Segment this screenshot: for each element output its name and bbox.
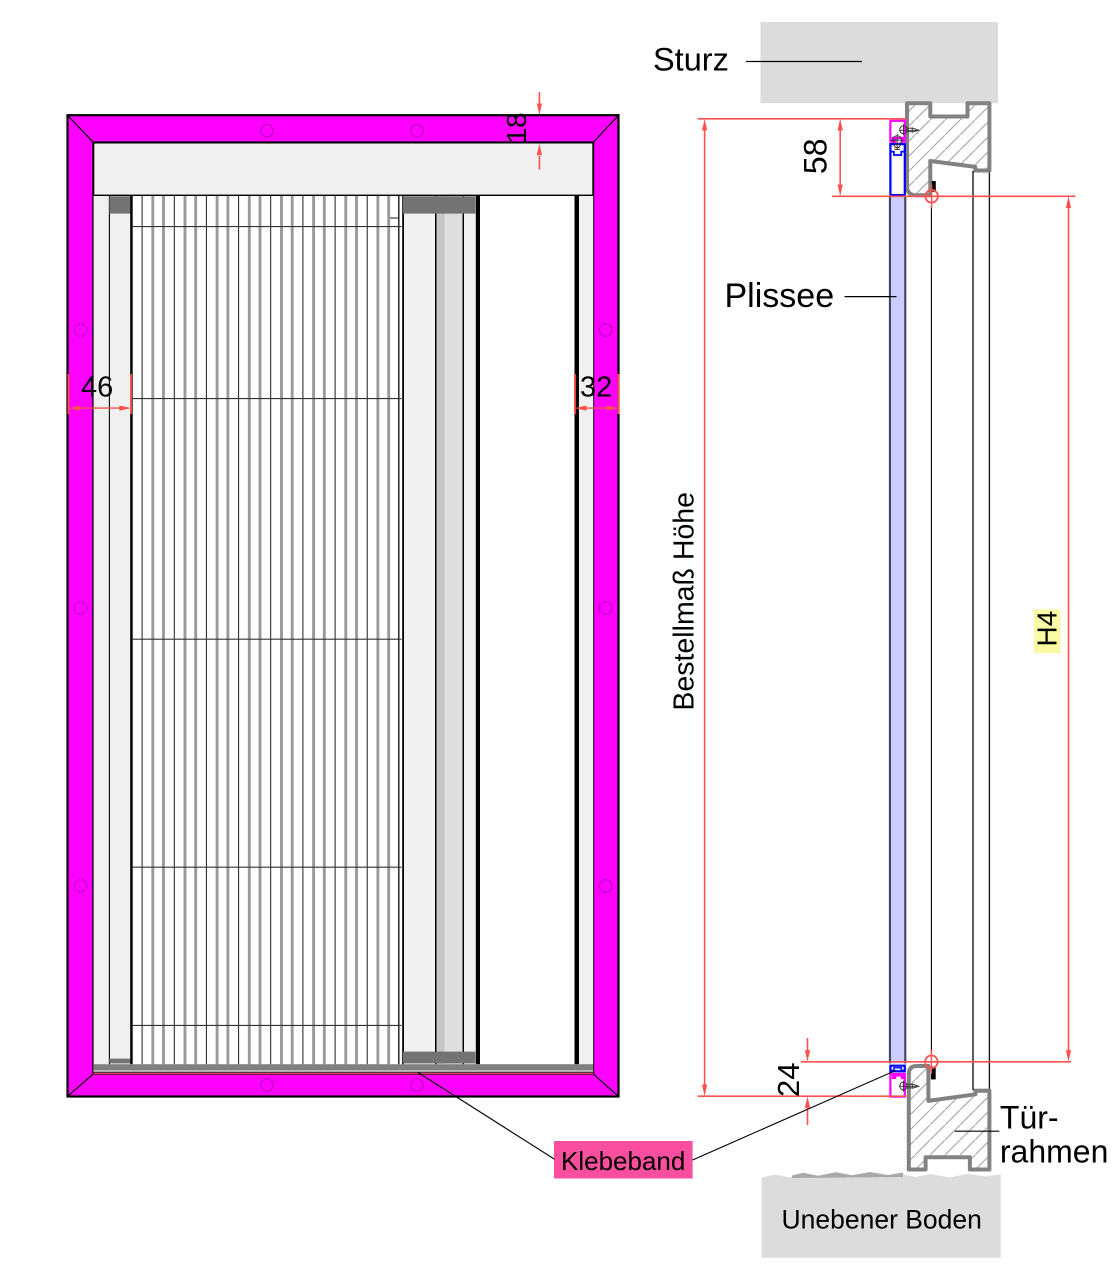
svg-text:Plissee: Plissee (725, 277, 835, 315)
svg-text:Sturz: Sturz (653, 42, 729, 78)
svg-text:Tür-: Tür- (1000, 1100, 1059, 1136)
svg-text:H4: H4 (1032, 611, 1063, 647)
svg-text:24: 24 (771, 1063, 806, 1097)
svg-text:rahmen: rahmen (1000, 1133, 1109, 1169)
svg-text:Bestellmaß Höhe: Bestellmaß Höhe (669, 492, 701, 711)
svg-text:Unebener Boden: Unebener Boden (782, 1205, 982, 1235)
svg-text:18: 18 (501, 112, 532, 143)
svg-text:32: 32 (580, 372, 612, 404)
svg-text:Klebeband: Klebeband (561, 1146, 685, 1176)
svg-text:46: 46 (81, 371, 113, 403)
svg-text:58: 58 (797, 139, 833, 175)
